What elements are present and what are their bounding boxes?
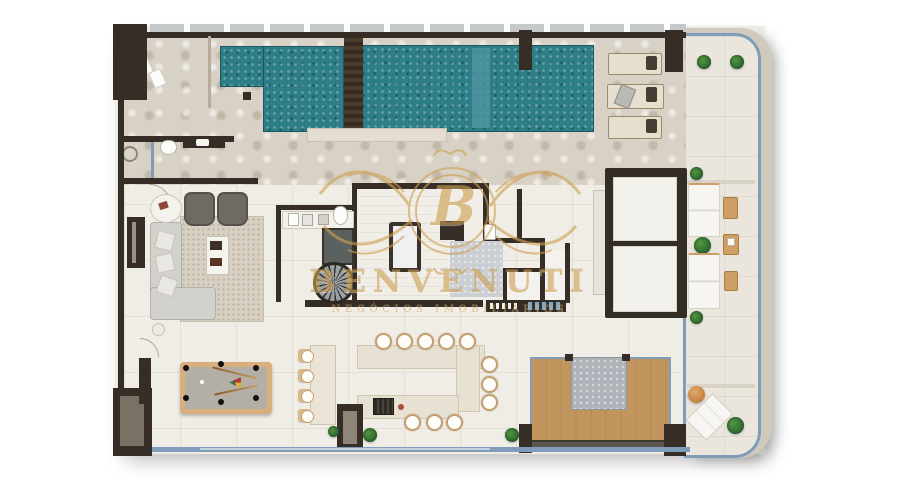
plant	[505, 428, 519, 442]
grill-icon	[373, 398, 394, 415]
dining-chair	[481, 376, 498, 393]
pocket	[253, 395, 259, 401]
plant	[730, 55, 744, 69]
pool-small	[220, 46, 264, 87]
plant	[690, 167, 703, 180]
fireplace-hearth	[343, 411, 357, 444]
dining-chair	[481, 394, 498, 411]
pool-pillar	[519, 30, 532, 70]
tv-screen	[132, 222, 136, 263]
dining-chair	[375, 333, 392, 350]
top-wall	[118, 32, 686, 38]
pool-wood-bridge	[344, 34, 363, 138]
shower-head-icon	[122, 146, 138, 162]
sink-icon	[302, 214, 313, 226]
plant	[697, 55, 711, 69]
toilet-icon	[333, 206, 348, 225]
dining-chair	[438, 333, 455, 350]
pocket	[183, 365, 189, 371]
side-table-round	[150, 194, 182, 223]
shower-glass	[151, 142, 154, 182]
bar-stool-seat	[301, 390, 314, 403]
spa-block	[571, 357, 627, 410]
plant	[690, 311, 703, 324]
pool-medium	[263, 46, 344, 132]
bathroom-floor	[450, 241, 503, 297]
closet-floor	[545, 250, 565, 300]
plant	[694, 237, 711, 254]
kettle-icon	[398, 404, 404, 410]
bar-stool-seat	[301, 350, 314, 363]
bar-stool-seat	[301, 370, 314, 383]
plant	[363, 428, 377, 442]
sink-icon	[196, 139, 209, 146]
kitchen-inner-wall-v	[276, 210, 281, 302]
corner-block-topleft	[113, 24, 147, 100]
dining-chair	[404, 414, 421, 431]
closet-wall-v2	[565, 243, 570, 303]
pool-submerged-ledge	[472, 48, 490, 128]
pouf	[688, 386, 705, 403]
cup-icon	[727, 238, 735, 246]
side-table	[723, 197, 738, 219]
coffee-machine-icon	[288, 213, 299, 226]
dining-table-right	[456, 345, 480, 412]
facade-glass-highlight	[200, 448, 490, 450]
balcony-sofa	[688, 183, 720, 237]
pool-drain	[243, 92, 251, 100]
dining-chair	[459, 333, 476, 350]
dining-chair	[417, 333, 434, 350]
living-wall	[118, 178, 258, 184]
dining-chair	[396, 333, 413, 350]
cue-ball	[200, 380, 204, 384]
lounger-pillow	[646, 119, 657, 133]
toilet-icon	[160, 140, 177, 155]
bathtub	[389, 222, 421, 272]
daybed-mattress	[613, 177, 677, 241]
plant	[328, 426, 339, 437]
lounger-pillow	[646, 87, 657, 102]
floorplan-image: B BENVENUTI NEGÓCIOS IMOBILIÁRIOS	[0, 0, 900, 482]
bar-stool-seat	[301, 410, 314, 423]
cue-rack-console	[139, 358, 151, 404]
floor-lamp	[152, 323, 165, 336]
pocket	[253, 365, 259, 371]
plant	[727, 417, 744, 434]
cooktop-icon	[318, 214, 329, 225]
sofa-cushion	[154, 252, 175, 273]
armchair	[217, 192, 248, 226]
dining-chair	[446, 414, 463, 431]
side-table	[724, 271, 738, 291]
pocket	[218, 361, 224, 367]
partition-block	[440, 221, 464, 240]
daybed-mattress	[613, 246, 677, 312]
balcony-sofa	[688, 253, 720, 309]
tv-panel	[127, 217, 145, 268]
lounger-pillow	[646, 56, 657, 70]
deck-post	[622, 354, 630, 361]
hall-wall-v2	[517, 189, 522, 241]
pool-pillar-2	[665, 30, 683, 72]
wall-sink-icon	[484, 224, 496, 240]
dining-chair	[481, 356, 498, 373]
tray-icon	[210, 258, 222, 266]
glassware-icons	[490, 303, 520, 309]
armchair	[184, 192, 215, 226]
deck-post	[565, 354, 573, 361]
pocket	[183, 395, 189, 401]
tray-icon	[210, 241, 222, 250]
spiral-staircase	[313, 262, 355, 304]
bottle-icons	[528, 302, 562, 310]
dining-chair	[426, 414, 443, 431]
pocket	[218, 399, 224, 405]
deck-edge-line	[208, 36, 211, 108]
fridge-cabinet	[322, 228, 354, 265]
closet-floor	[507, 272, 540, 300]
pool-step	[307, 128, 447, 142]
